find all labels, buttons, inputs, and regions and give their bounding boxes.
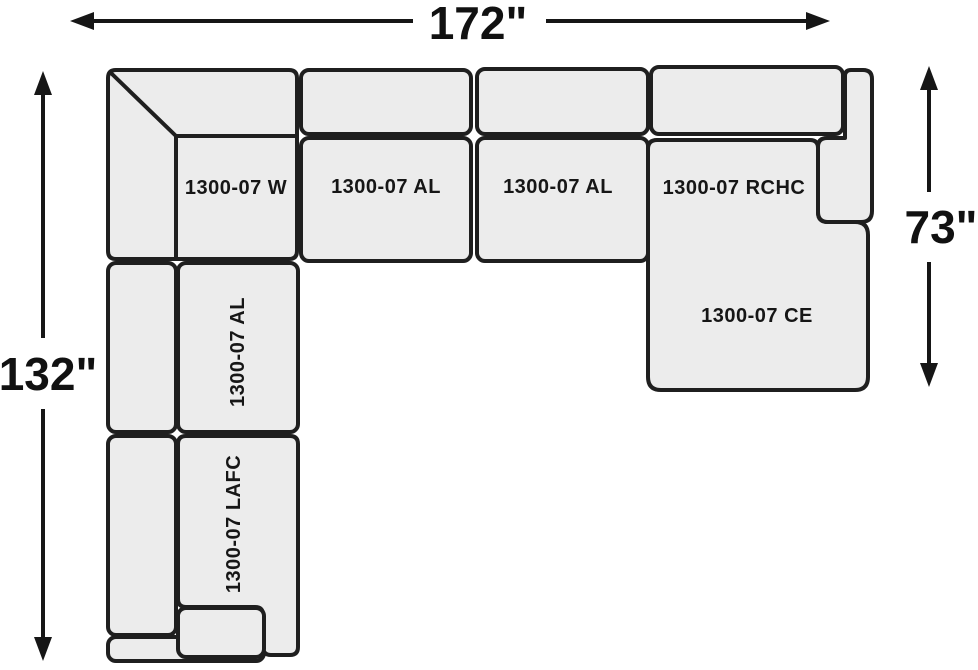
left-height-dimension-label: 132" (0, 348, 97, 400)
diagram-canvas: 1300-07 W 1300-07 AL 1300-07 AL 1300-07 … (0, 0, 978, 670)
armless-top-2-piece: 1300-07 AL (477, 69, 648, 261)
armless-top-2-label: 1300-07 AL (503, 176, 613, 198)
width-dimension: 172" (70, 0, 830, 49)
lafc-arm (178, 608, 264, 657)
right-chaise-back (651, 67, 843, 134)
armless-left-back (108, 263, 176, 432)
sectional-layout-diagram: 1300-07 W 1300-07 AL 1300-07 AL 1300-07 … (0, 0, 978, 670)
width-dimension-label: 172" (429, 0, 528, 49)
armless-top-1-piece: 1300-07 AL (301, 70, 471, 261)
wedge-label: 1300-07 W (185, 177, 287, 199)
lafc-label: 1300-07 LAFC (223, 455, 245, 593)
arrow-down-icon (920, 363, 938, 387)
arrow-up-icon (920, 66, 938, 90)
arrow-down-icon (34, 637, 52, 661)
arrow-left-icon (70, 12, 94, 30)
arrow-up-icon (34, 71, 52, 95)
wedge-piece: 1300-07 W (108, 70, 297, 259)
right-height-dimension: 73" (905, 66, 978, 387)
armless-top-2-back (477, 69, 648, 134)
right-chaise-piece: 1300-07 RCHC 1300-07 CE (648, 67, 872, 390)
right-height-dimension-label: 73" (905, 201, 978, 253)
chaise-extension-label: 1300-07 CE (701, 305, 813, 327)
lafc-back (108, 436, 176, 635)
armless-top-1-back (301, 70, 471, 134)
armless-top-2-seat (477, 138, 648, 261)
armless-top-1-label: 1300-07 AL (331, 176, 441, 198)
arrow-right-icon (806, 12, 830, 30)
left-height-dimension: 132" (0, 71, 97, 661)
armless-left-label: 1300-07 AL (227, 297, 249, 407)
right-chaise-label: 1300-07 RCHC (663, 177, 806, 199)
lafc-piece: 1300-07 LAFC (108, 436, 298, 661)
armless-left-piece: 1300-07 AL (108, 263, 298, 432)
armless-top-1-seat (301, 138, 471, 261)
